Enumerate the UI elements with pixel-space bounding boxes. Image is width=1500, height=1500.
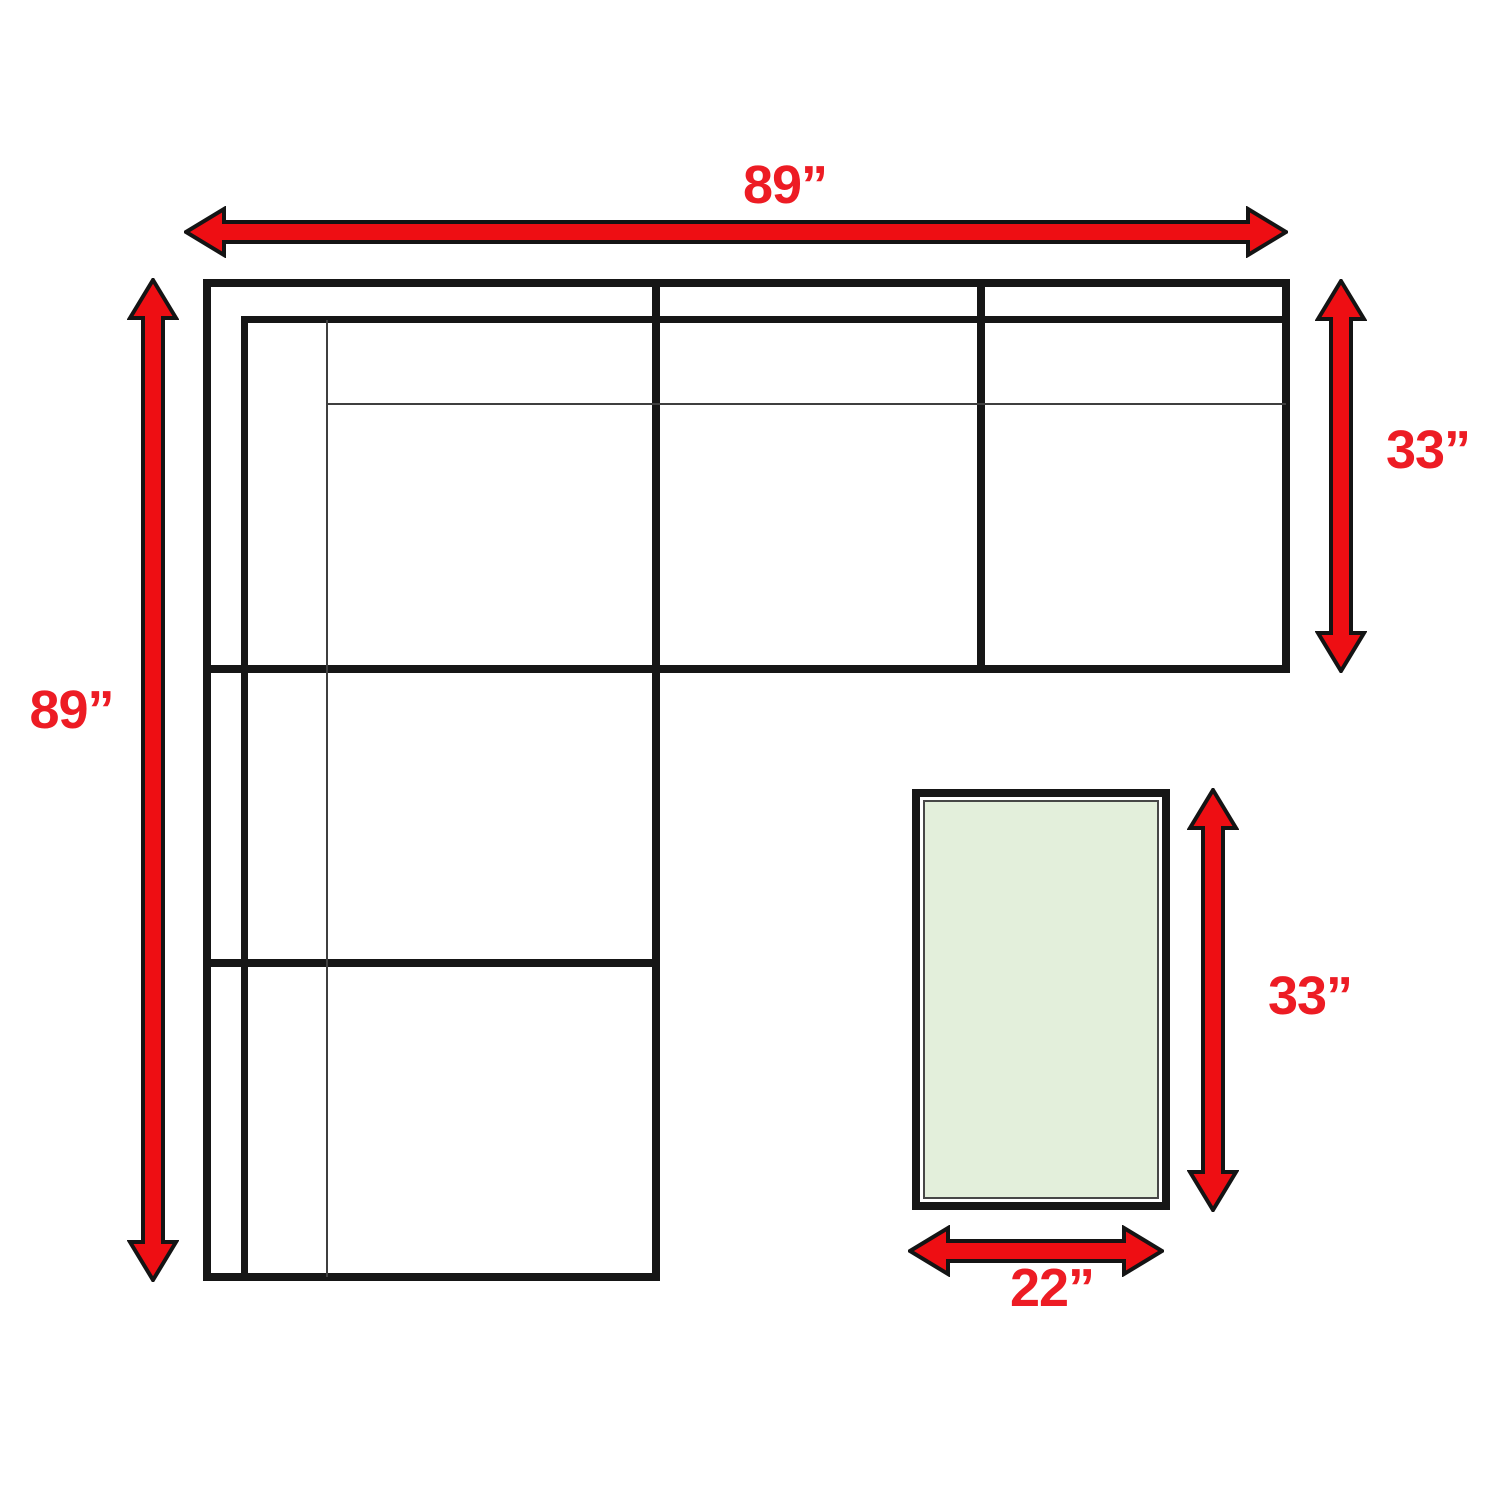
ottoman-length-arrow-icon bbox=[1187, 788, 1239, 1212]
sofa-corner-divider-vertical bbox=[652, 279, 660, 1281]
sectional-dimension-diagram: 89” 89” 33” 33” 22” bbox=[0, 0, 1500, 1500]
sofa-seat-depth-arrow-icon bbox=[1315, 279, 1367, 673]
sofa-cushion-line-horizontal bbox=[326, 403, 1286, 405]
sofa-cushion-line-vertical bbox=[326, 320, 328, 1277]
sofa-outline-bottom bbox=[203, 1273, 660, 1281]
sofa-left-arm-seat-divider bbox=[203, 959, 660, 967]
ottoman-width-arrow-icon bbox=[908, 1225, 1164, 1277]
sofa-backrest-line-horizontal bbox=[241, 316, 1290, 323]
sofa-arm-bottom-divider bbox=[203, 665, 1290, 673]
ottoman-top-surface bbox=[923, 800, 1159, 1199]
sofa-outline-top bbox=[203, 279, 1290, 287]
sofa-seat-depth-label: 33” bbox=[1358, 420, 1498, 480]
sofa-right-seat-divider bbox=[977, 279, 985, 673]
sofa-depth-arrow-icon bbox=[127, 278, 179, 1282]
ottoman-length-label: 33” bbox=[1240, 966, 1380, 1026]
sofa-backrest-line-vertical bbox=[241, 316, 248, 1277]
sofa-outline-right bbox=[1282, 279, 1290, 673]
sofa-outline-left bbox=[203, 279, 211, 1281]
ottoman-outline bbox=[912, 789, 1170, 1210]
sofa-depth-label: 89” bbox=[4, 680, 139, 740]
sofa-width-arrow-icon bbox=[184, 206, 1288, 258]
